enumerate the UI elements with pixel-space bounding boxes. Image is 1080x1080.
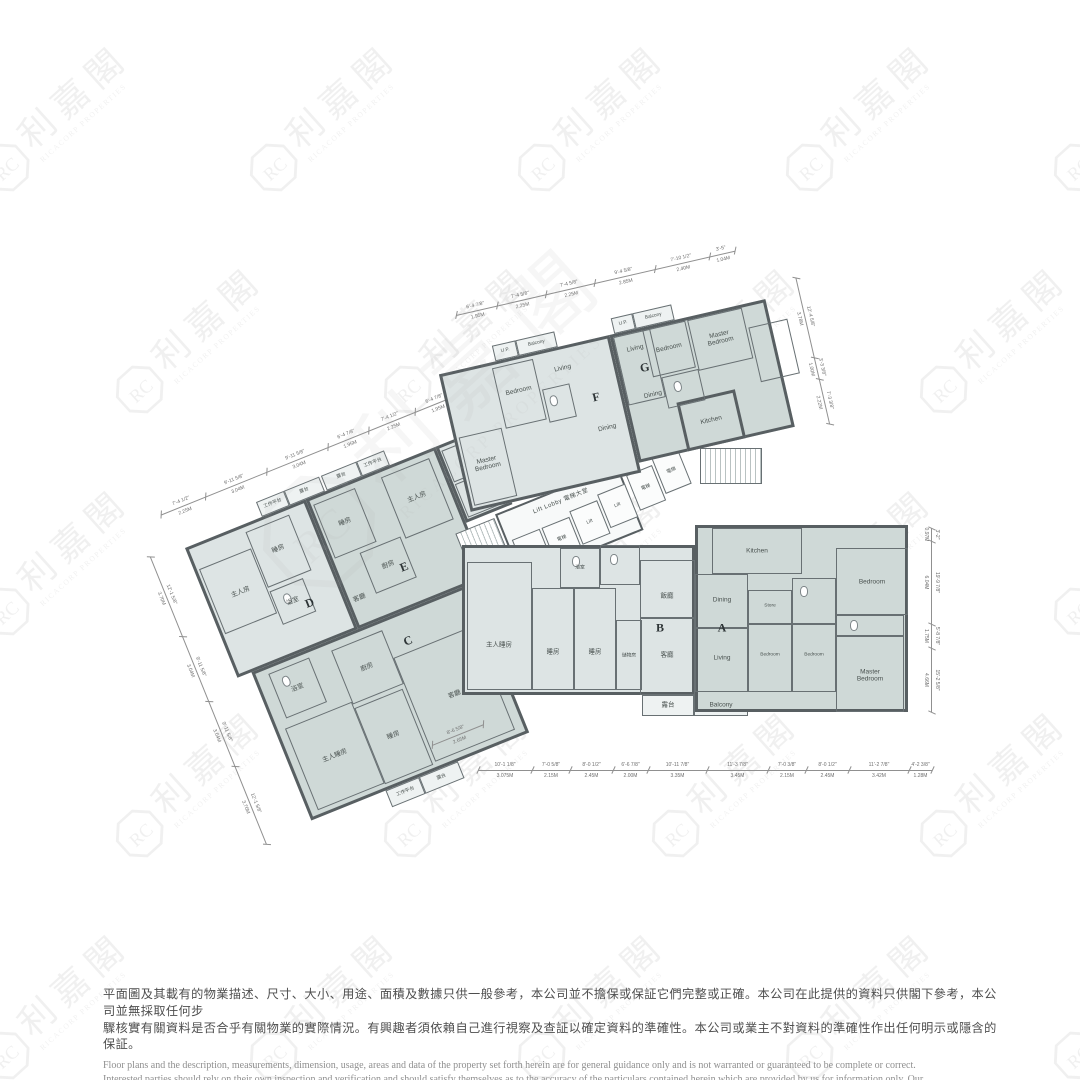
dimension-metres: 1.28M bbox=[914, 773, 928, 779]
dimension-metres: 2.15M bbox=[544, 773, 558, 779]
room-label: 儲物房 bbox=[622, 653, 636, 658]
dimension-feet: 12'-4 5/8" bbox=[806, 305, 817, 327]
disclaimer-en-line: Interested parties should rely on their … bbox=[103, 1073, 1003, 1080]
room-label: 浴室 bbox=[575, 565, 585, 570]
dimension-feet: 7'-0 3/8" bbox=[778, 762, 796, 768]
staircase bbox=[700, 448, 762, 484]
dimension-feet: 9'-11 5/8" bbox=[284, 448, 305, 461]
dimension-segment: 3'-3 3/8"1.00M bbox=[815, 357, 820, 378]
dimension-feet: 10'-1 1/8" bbox=[494, 762, 515, 768]
dimension-feet: 9'-11 5/8" bbox=[194, 656, 207, 677]
dimension-metres: 3.70M bbox=[156, 591, 167, 606]
bath-fixture bbox=[850, 620, 858, 631]
dimension-segment: 9'-11 5/8"3.04M bbox=[183, 636, 209, 701]
dimension-feet: 19'-9 7/8" bbox=[935, 572, 941, 593]
dimension-feet: 9'-4 5/8" bbox=[614, 266, 633, 276]
dimension-feet: 11'-3 7/8" bbox=[727, 762, 748, 768]
dimension-feet: 8'-0 1/2" bbox=[818, 762, 836, 768]
dimension-segment: 7'-3 3/8"2.22M bbox=[820, 379, 830, 424]
unit-letter: A bbox=[718, 621, 727, 634]
page-root: RC利嘉閣RICACORP PROPERTIES RC利嘉閣RICACORP P… bbox=[0, 0, 1080, 1080]
dimension-segment: 12'-1 5/8"3.70M bbox=[151, 556, 183, 636]
room-label: Living bbox=[714, 654, 731, 661]
dimension-metres: 2.15M bbox=[780, 773, 794, 779]
room-label: 睡房 bbox=[547, 648, 560, 655]
disclaimer-zh-line: 平面圖及其載有的物業描述、尺寸、大小、用途、面積及數據只供一般參考，本公司並不擔… bbox=[103, 986, 1003, 1020]
room-box bbox=[600, 545, 640, 585]
dimension-metres: 3.04M bbox=[211, 728, 222, 743]
dimension-metres: 1.00M bbox=[807, 362, 816, 377]
room-label: Bedroom bbox=[760, 652, 779, 657]
disclaimer-chinese: 平面圖及其載有的物業描述、尺寸、大小、用途、面積及數據只供一般參考，本公司並不擔… bbox=[103, 986, 1003, 1053]
dimension-feet: 6'-6 7/8" bbox=[621, 762, 639, 768]
dimension-feet: 3'-2" bbox=[935, 530, 941, 540]
room-box bbox=[836, 615, 904, 636]
disclaimer-en-line: Floor plans and the description, measure… bbox=[103, 1059, 1003, 1073]
dimension-feet: 15'-2 5/8" bbox=[935, 669, 941, 690]
disclaimer: 平面圖及其載有的物業描述、尺寸、大小、用途、面積及數據只供一般參考，本公司並不擔… bbox=[103, 986, 1003, 1080]
room-box bbox=[574, 588, 616, 690]
dimension-metres: 2.45M bbox=[585, 773, 599, 779]
dimension-metres: 2.45M bbox=[821, 773, 835, 779]
dimension-metres: 6.04M bbox=[923, 576, 929, 590]
room-box bbox=[792, 578, 836, 624]
room-box bbox=[532, 588, 574, 690]
dimension-metres: 2.40M bbox=[676, 264, 691, 273]
dimension-feet: 11'-2 7/8" bbox=[869, 762, 890, 768]
room-box bbox=[792, 624, 836, 692]
dimension-metres: 3.075M bbox=[497, 773, 514, 779]
dimension-segment: 12'-4 5/8"3.78M bbox=[796, 278, 814, 358]
dimension-feet: 8'-0 1/2" bbox=[582, 762, 600, 768]
dimension-metres: 2.00M bbox=[624, 773, 638, 779]
dimension-feet: 7'-10 1/2" bbox=[670, 252, 692, 263]
room-label: Bedroom bbox=[804, 652, 823, 657]
dimension-feet: 9'-11 5/8" bbox=[221, 721, 234, 742]
room-box bbox=[640, 560, 695, 618]
dimension-feet: 7'-4 1/2" bbox=[171, 494, 190, 506]
dimension-segment: 9'-11 5/8"3.04M bbox=[209, 701, 235, 766]
dimension-feet: 12'-1 5/8" bbox=[249, 792, 262, 814]
dimension-metres: 3.42M bbox=[872, 773, 886, 779]
room-label: Kitchen bbox=[746, 547, 768, 554]
dimension-metres: 3.04M bbox=[231, 484, 246, 495]
svg-text:RC: RC bbox=[285, 498, 360, 572]
room-box bbox=[748, 624, 792, 692]
dimension-feet: 9'-11 5/8" bbox=[223, 473, 244, 486]
dimension-metres: 3.04M bbox=[185, 663, 196, 678]
dimension-metres: 1.04M bbox=[716, 255, 731, 264]
room-label: 客廳 bbox=[661, 651, 674, 658]
room-label: 主人睡房 bbox=[486, 641, 512, 648]
dimension-feet: 7'-3 3/8" bbox=[825, 390, 835, 409]
bath-fixture bbox=[610, 554, 618, 565]
room-label: Store bbox=[764, 603, 775, 608]
dimension-metres: 4.66M bbox=[923, 673, 929, 687]
dimension-line-gright: 12'-4 5/8"3.78M3'-3 3/8"1.00M7'-3 3/8"2.… bbox=[796, 278, 830, 424]
dimension-segment: 3'-5"1.04M bbox=[709, 251, 734, 257]
dimension-feet: 3'-3 3/8" bbox=[818, 357, 828, 376]
disclaimer-english: Floor plans and the description, measure… bbox=[103, 1059, 1003, 1080]
unit-letter: B bbox=[656, 621, 664, 634]
balcony-label: 露台 bbox=[662, 701, 675, 708]
dimension-metres: 2.22M bbox=[815, 395, 824, 410]
dimension-segment: 12'-1 5/8"3.70M bbox=[235, 766, 266, 844]
dimension-metres: 1.75M bbox=[923, 629, 929, 643]
floor-plan: D主人房睡房浴室工作平台露台E睡房主人房廚房客廳露台工作平台C主人睡房睡房客廳廚… bbox=[0, 0, 1080, 1080]
room-label: Dining bbox=[713, 596, 731, 603]
room-box bbox=[467, 562, 532, 690]
dimension-feet: 3'-5" bbox=[715, 244, 726, 252]
room-label: Master Bedroom bbox=[857, 669, 883, 684]
dimension-segment: 7'-10 1/2"2.40M bbox=[655, 257, 710, 270]
dimension-metres: 3.78M bbox=[795, 311, 804, 326]
dimension-metres: 3.35M bbox=[671, 773, 685, 779]
dimension-segment: 9'-11 5/8"3.04M bbox=[205, 472, 266, 497]
dimension-metres: 2.25M bbox=[178, 506, 193, 517]
room-label: 睡房 bbox=[589, 648, 602, 655]
bath-fixture bbox=[800, 586, 808, 597]
dimension-feet: 10'-11 7/8" bbox=[666, 762, 690, 768]
dimension-feet: 12'-1 5/8" bbox=[165, 583, 178, 605]
room-label: 飯廳 bbox=[661, 592, 674, 599]
dimension-metres: 3.70M bbox=[240, 800, 251, 815]
room-label: Bedroom bbox=[859, 578, 885, 585]
dimension-feet: 7'-0 5/8" bbox=[542, 762, 560, 768]
dimension-feet: 4'-2 3/8" bbox=[911, 762, 929, 768]
dimension-feet: 5'-8 7/8" bbox=[935, 627, 941, 645]
dimension-metres: 3.45M bbox=[731, 773, 745, 779]
dimension-segment: 7'-4 1/2"2.25M bbox=[161, 497, 206, 515]
disclaimer-zh-line: 驟核實有關資料是否合乎有關物業的實際情況。有興趣者須依賴自己進行視察及查証以確定… bbox=[103, 1020, 1003, 1054]
balcony-label: Balcony bbox=[709, 701, 732, 708]
